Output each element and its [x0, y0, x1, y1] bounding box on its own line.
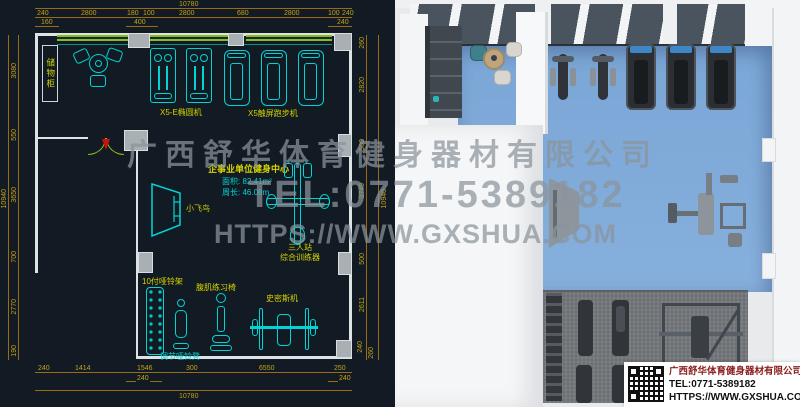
dim-label: 240: [136, 375, 150, 382]
bench-3d: [576, 365, 592, 403]
dim-label: 250: [333, 365, 347, 372]
flybird-plan: [146, 176, 186, 242]
dim-label: 3749: [359, 182, 366, 200]
dim-label: 240: [36, 10, 50, 17]
dim-label: 3650: [11, 186, 18, 204]
bench-pad: [175, 310, 187, 338]
dim-line-right-row: [366, 35, 367, 360]
dim-label: 180: [126, 10, 140, 17]
trainer-tower-3d: [698, 193, 714, 235]
elliptical-3d: [550, 50, 576, 104]
treadmill-belt: [634, 60, 648, 104]
trainer-3d: [668, 173, 746, 251]
cabinet-item: [433, 96, 439, 102]
wall-interior-west: [136, 138, 138, 358]
smith-3d: [662, 303, 740, 367]
dim-label: 10940: [381, 188, 388, 209]
dim-label: 2800: [178, 10, 196, 17]
dim-label: 260: [368, 346, 375, 360]
treadmill-track: [230, 63, 243, 100]
dim-line-top-row: [35, 17, 352, 18]
door-center-marker: [102, 139, 110, 150]
dim-label: 260: [359, 36, 366, 50]
treadmill-console-3d: [710, 46, 732, 53]
smith-bench-3d: [691, 316, 709, 358]
elliptical-wheel: [154, 54, 162, 62]
outside-area: [395, 125, 543, 407]
smith-upright: [259, 308, 263, 350]
dim-line-top-total: [35, 8, 352, 9]
abchair-plan: [210, 293, 232, 353]
flybird-label: 小飞鸟: [186, 204, 210, 213]
render-3d-panel: 广西舒华体育健身器材有限公司 TEL:0771-5389182 HTTPS://…: [395, 0, 800, 407]
treadmill-3d: [666, 44, 696, 110]
dim-label: 240: [336, 19, 350, 26]
trainer-arm-3d: [706, 173, 712, 195]
column: [338, 252, 352, 275]
window-band: [410, 4, 800, 44]
dim-label: 2820: [359, 76, 366, 94]
trainer-plan: [266, 163, 330, 247]
treadmill-3d: [706, 44, 736, 110]
elliptical-rail: [166, 66, 168, 90]
elliptical-arms: [592, 56, 614, 62]
company-info-card: 广西舒华体育健身器材有限公司 TEL:0771-5389182 HTTPS://…: [624, 362, 800, 407]
screenshot: 10780 240 2800 180 100 2800 680 2800 100…: [0, 0, 800, 407]
smith-bench: [277, 314, 291, 346]
window-strip: [57, 35, 128, 41]
column: [338, 134, 352, 157]
dim-label: 550: [11, 128, 18, 142]
dim-line-top-seg2: [126, 26, 158, 27]
elliptical-pedal: [610, 68, 616, 86]
window-inner-line: [57, 44, 332, 45]
column: [228, 33, 244, 46]
wall-lobby-south-left: [37, 137, 88, 139]
card-company-name: 广西舒华体育健身器材有限公司: [669, 367, 800, 377]
treadmill-console: [264, 53, 283, 58]
trainer-arm-3d: [720, 175, 738, 183]
trainer-arm: [303, 163, 312, 178]
wall-right: [349, 33, 352, 359]
card-tel: TEL:0771-5389182: [669, 380, 756, 390]
dumbbell-rack-3d: [546, 293, 562, 401]
treadmill-3d: [626, 44, 656, 110]
abchair-pad-3d: [616, 306, 625, 332]
column: [138, 252, 153, 273]
trainer-label-2: 综合训练器: [280, 253, 320, 262]
dim-label: 2770: [11, 298, 18, 316]
smith-plate: [252, 319, 258, 336]
elliptical-arms: [552, 56, 574, 62]
dim-label: 240: [357, 340, 364, 354]
smith-plan: [250, 306, 318, 354]
trainer-label-1: 三人站: [288, 243, 312, 252]
table-item: [95, 60, 102, 67]
dim-label: 1414: [74, 365, 92, 372]
qr-corner: [629, 392, 638, 401]
bench-plan: [172, 299, 190, 353]
window-strip: [150, 35, 228, 41]
dim-line-top-seg1: [35, 26, 59, 27]
info-area: 面积: 82.41m²: [222, 177, 272, 186]
smith-plate: [310, 319, 316, 336]
bench-label: 调节哑铃凳: [160, 352, 200, 361]
abchair-base: [210, 345, 232, 351]
table-item-3d: [491, 55, 497, 61]
abchair-column: [217, 306, 225, 332]
dim-label: 680: [236, 10, 250, 17]
flybird-frame: [553, 190, 557, 238]
treadmill-belt: [674, 60, 688, 104]
dim-label: 240: [37, 365, 51, 372]
dim-label: 3080: [11, 62, 18, 80]
column: [128, 33, 150, 48]
rack-plan: [146, 287, 164, 355]
storage-label: 储物柜: [45, 58, 55, 90]
trainer-arm: [284, 163, 293, 178]
dim-label: 10780: [178, 1, 199, 8]
wall-right-3d: [772, 8, 800, 407]
treadmill-plan: [261, 50, 287, 106]
window-pillar: [663, 4, 677, 44]
column: [334, 33, 352, 51]
storage-cabinet-3d: [425, 26, 462, 118]
dim-label: 1546: [136, 365, 154, 372]
abchair-pad: [216, 293, 226, 303]
smith-upright: [305, 308, 309, 350]
treadmill-track: [267, 63, 280, 100]
column-3d: [762, 138, 776, 162]
chair-plan: [105, 47, 123, 63]
wall-left: [35, 33, 38, 273]
dim-label: 10780: [178, 393, 199, 400]
treadmill-console-3d: [630, 46, 652, 53]
qr-corner: [654, 367, 663, 376]
elliptical-rail: [158, 66, 160, 90]
dim-label: 2611: [359, 296, 366, 313]
elliptical-pedal: [570, 68, 576, 86]
elliptical-plan: [186, 48, 212, 103]
trainer-plate: [266, 194, 277, 209]
dim-label: 500: [359, 252, 366, 266]
elliptical-rail: [194, 66, 196, 90]
elliptical-base: [190, 93, 208, 99]
window-strip: [246, 35, 332, 41]
dim-label: 6550: [258, 365, 276, 372]
elliptical-plan: [150, 48, 176, 103]
qr-code: [628, 366, 664, 402]
dim-line-bottom-row: [35, 372, 352, 373]
dim-label: 300: [185, 365, 199, 372]
abchair-3d: [612, 300, 629, 356]
smith-label: 史密斯机: [266, 294, 298, 303]
treadmill-plan: [298, 50, 324, 106]
dim-label: 2800: [80, 10, 98, 17]
trainer-frame-3d: [720, 203, 746, 229]
elliptical-pedal: [590, 68, 596, 86]
bench-head: [177, 299, 185, 307]
wall-stub-3d: [516, 12, 548, 134]
column: [124, 130, 148, 151]
treadmill-label: X5触屏跑步机: [248, 109, 298, 118]
trainer-seat-3d: [728, 233, 742, 247]
bench-base: [173, 343, 189, 349]
dim-label: 240: [341, 10, 355, 17]
treadmill-belt: [714, 60, 728, 104]
trainer-plate-3d: [668, 203, 677, 223]
chair-plan: [90, 75, 106, 87]
dim-label: 100: [327, 10, 341, 17]
abchair-seat: [212, 335, 230, 343]
dim-label: 190: [11, 344, 18, 358]
chair-3d: [506, 42, 522, 57]
dim-line-left-total: [8, 35, 9, 360]
elliptical-rail: [202, 66, 204, 90]
dim-label: 160: [40, 19, 54, 26]
elliptical-wheel: [190, 54, 198, 62]
chair-3d: [494, 70, 511, 85]
elliptical-3d: [590, 50, 616, 104]
dim-line-top-seg3: [328, 26, 352, 27]
dim-label: 500: [359, 138, 366, 152]
abchair-label: 腹肌练习椅: [196, 283, 236, 292]
dim-line-right-total: [378, 35, 379, 360]
bench-3d: [578, 300, 593, 356]
dim-label: 10940: [1, 188, 8, 209]
elliptical-wheel: [164, 54, 172, 62]
trainer-plate: [319, 194, 330, 209]
wall-left-3d: [400, 14, 428, 126]
elliptical-label: X5-E椭圆机: [160, 108, 202, 117]
elliptical-base: [154, 93, 172, 99]
card-website: HTTPS://WWW.GXSHUA.COM: [669, 393, 800, 403]
cad-floorplan-panel: 10780 240 2800 180 100 2800 680 2800 100…: [0, 0, 395, 407]
info-perimeter: 周长: 46.08m: [222, 188, 269, 197]
dim-label: 240: [338, 375, 352, 382]
treadmill-track: [304, 63, 317, 100]
dim-label: 400: [133, 19, 147, 26]
dim-label: 100: [142, 10, 156, 17]
qr-corner: [629, 367, 638, 376]
elliptical-wheel: [200, 54, 208, 62]
dim-line-bottom-total: [35, 390, 352, 391]
treadmill-console: [227, 53, 246, 58]
trainer-seat: [290, 227, 305, 244]
rack-label: 10付哑铃架: [142, 277, 183, 286]
elliptical-pedal: [550, 68, 556, 86]
dim-line-left-row: [18, 35, 19, 360]
treadmill-console-3d: [670, 46, 692, 53]
treadmill-console: [301, 53, 320, 58]
column-3d: [762, 253, 776, 279]
column: [336, 340, 352, 358]
dim-label: 700: [11, 250, 18, 264]
treadmill-plan: [224, 50, 250, 106]
dim-label: 2800: [283, 10, 301, 17]
